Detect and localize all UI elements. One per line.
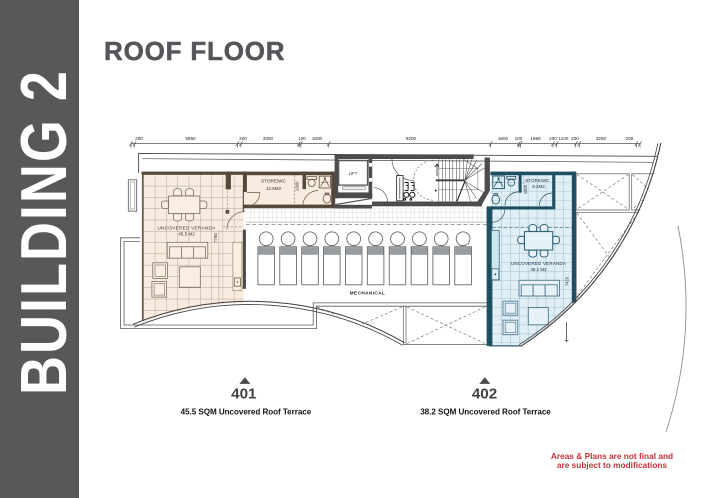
svg-text:1600: 1600 [312,136,323,141]
svg-text:38.2 SQM Uncovered Roof Terrac: 38.2 SQM Uncovered Roof Terrace [420,407,551,416]
svg-text:UNCOVERED VERANDA: UNCOVERED VERANDA [158,226,217,231]
svg-text:200: 200 [239,136,247,141]
svg-text:45.5 M2: 45.5 M2 [178,231,195,236]
svg-text:12.5M2: 12.5M2 [266,186,282,191]
svg-text:STORE/WC: STORE/WC [261,178,286,183]
svg-text:BUILDING 2: BUILDING 2 [7,69,80,395]
svg-text:9.2M2: 9.2M2 [532,184,545,189]
svg-text:7420: 7420 [565,276,570,286]
svg-text:38.2 M2: 38.2 M2 [530,267,547,272]
svg-text:1900: 1900 [523,184,528,194]
svg-text:200: 200 [571,136,579,141]
svg-text:100: 100 [515,136,523,141]
svg-text:9200: 9200 [406,136,417,141]
svg-text:1100: 1100 [559,136,569,141]
svg-text:1600: 1600 [498,136,509,141]
svg-text:5850: 5850 [185,136,196,141]
svg-text:402: 402 [472,386,497,403]
svg-text:LIFT: LIFT [349,171,358,176]
svg-text:UNCOVERED VERANDA: UNCOVERED VERANDA [511,261,566,266]
svg-text:7750: 7750 [213,233,218,243]
svg-text:200: 200 [549,136,557,141]
svg-text:STORE/WC: STORE/WC [525,178,550,183]
svg-text:MECHANICAL: MECHANICAL [350,291,386,296]
svg-text:1900: 1900 [295,181,300,191]
svg-text:3300: 3300 [263,136,274,141]
svg-text:401: 401 [231,386,257,403]
svg-text:45.5 SQM Uncovered Roof Terrac: 45.5 SQM Uncovered Roof Terrace [181,407,312,416]
svg-text:200: 200 [135,136,143,141]
svg-text:3250: 3250 [596,136,607,141]
svg-text:1850: 1850 [530,136,541,141]
svg-text:100: 100 [298,136,306,141]
svg-text:200: 200 [626,136,634,141]
